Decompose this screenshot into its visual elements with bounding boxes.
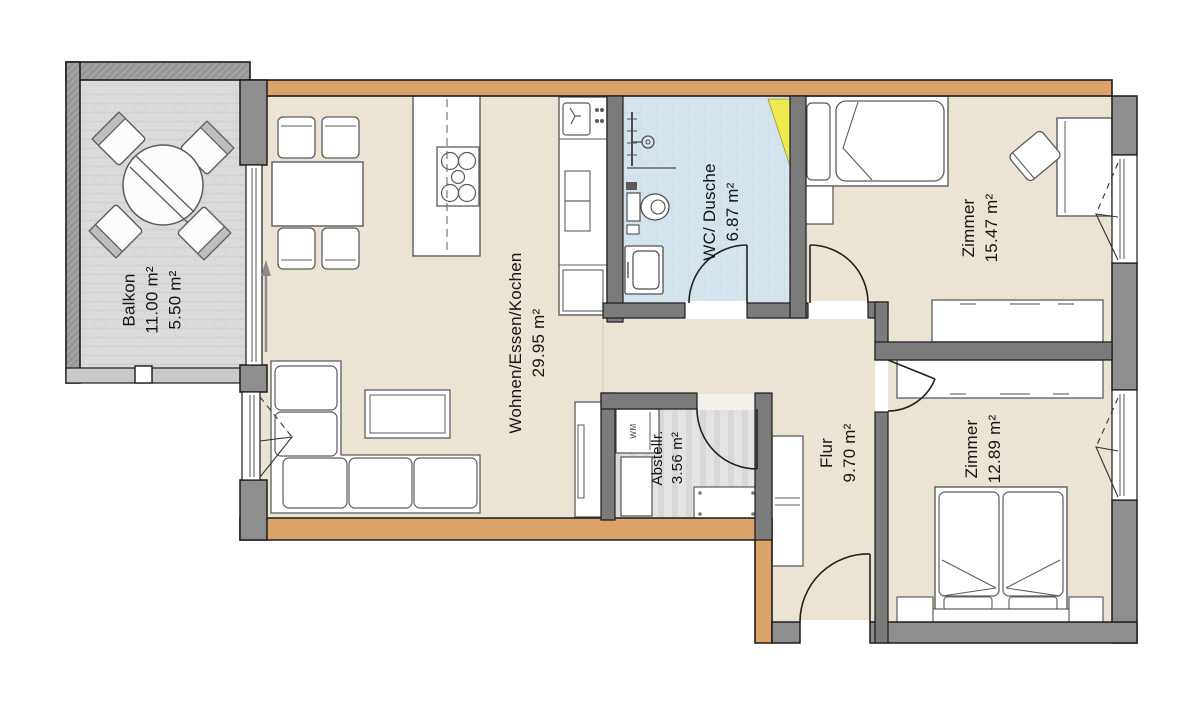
toilet bbox=[627, 193, 669, 221]
wall-wc-left bbox=[607, 96, 623, 322]
sideboard bbox=[932, 300, 1103, 342]
floor-plan-drawing bbox=[0, 0, 1200, 714]
wall-storage-top bbox=[601, 393, 697, 409]
threshold-storage-door bbox=[697, 394, 757, 410]
washbasin-vanity bbox=[625, 246, 663, 294]
balcony-wall-top bbox=[66, 62, 250, 80]
exterior-wall-bottomright-b bbox=[870, 622, 1137, 643]
exterior-wall-left-a bbox=[240, 80, 267, 165]
hall-wardrobe bbox=[772, 436, 803, 566]
double-bed bbox=[920, 487, 1082, 628]
threshold-wc-door bbox=[685, 301, 747, 319]
kitchen-island bbox=[413, 95, 480, 256]
dining-chair bbox=[322, 117, 359, 158]
desk bbox=[1057, 118, 1112, 216]
exterior-wall-top bbox=[250, 80, 1112, 96]
wall-hall-room-lower bbox=[875, 412, 888, 643]
balcony-wall-left bbox=[66, 62, 80, 383]
exterior-wall-bottomright-a bbox=[772, 622, 800, 643]
dining-chair bbox=[322, 228, 359, 269]
balcony-drain bbox=[135, 366, 152, 383]
shower-control bbox=[626, 182, 637, 190]
exterior-wall-left-b bbox=[240, 365, 267, 392]
washing-machine bbox=[616, 409, 659, 453]
toilet-paper-holder bbox=[627, 225, 639, 234]
single-bed bbox=[803, 96, 948, 186]
exterior-wall-left-c bbox=[240, 480, 267, 540]
wall-storage-left bbox=[601, 393, 615, 520]
wall-wc-bottom-left bbox=[603, 303, 685, 318]
threshold-room-top-door bbox=[808, 301, 868, 319]
kitchen-counter bbox=[559, 97, 607, 315]
balcony-slab-edge bbox=[66, 368, 243, 383]
coffee-table bbox=[365, 390, 450, 438]
wall-wc-right bbox=[790, 96, 806, 318]
nightstand bbox=[803, 186, 833, 224]
balcony-table bbox=[123, 145, 203, 225]
exterior-wall-right-b bbox=[1112, 263, 1137, 390]
exterior-wall-bottom bbox=[240, 518, 772, 643]
floor-plan-page: Balkon 11.00 m² 5.50 m² Wohnen/Essen/Koc… bbox=[0, 0, 1200, 714]
threshold-room-bottom-door bbox=[875, 360, 888, 412]
exterior-wall-right-a bbox=[1112, 96, 1137, 155]
threshold-entrance-door bbox=[800, 620, 870, 644]
storage-shelf bbox=[621, 457, 652, 516]
dining-table bbox=[272, 162, 363, 226]
dining-chair bbox=[278, 228, 315, 269]
storage-mat bbox=[694, 487, 759, 520]
dining-chair bbox=[278, 117, 315, 158]
wall-between-rooms bbox=[875, 342, 1112, 360]
